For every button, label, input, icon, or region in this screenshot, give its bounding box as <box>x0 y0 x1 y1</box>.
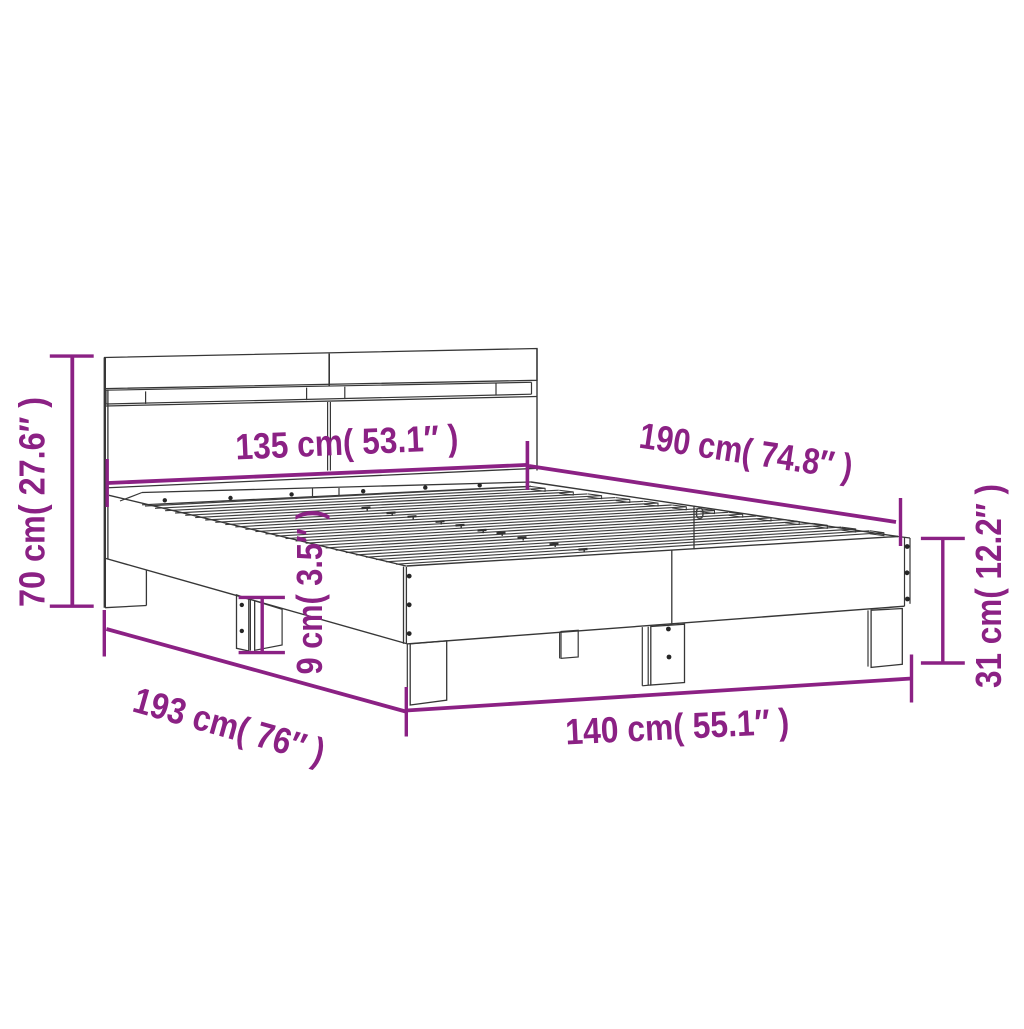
svg-text:0: 0 <box>695 504 704 523</box>
svg-text:70 cm( 27.6″ ): 70 cm( 27.6″ ) <box>12 397 53 607</box>
svg-text:9 cm( 3.5″ ): 9 cm( 3.5″ ) <box>289 510 330 675</box>
svg-text:31 cm( 12.2″ ): 31 cm( 12.2″ ) <box>968 484 1009 688</box>
